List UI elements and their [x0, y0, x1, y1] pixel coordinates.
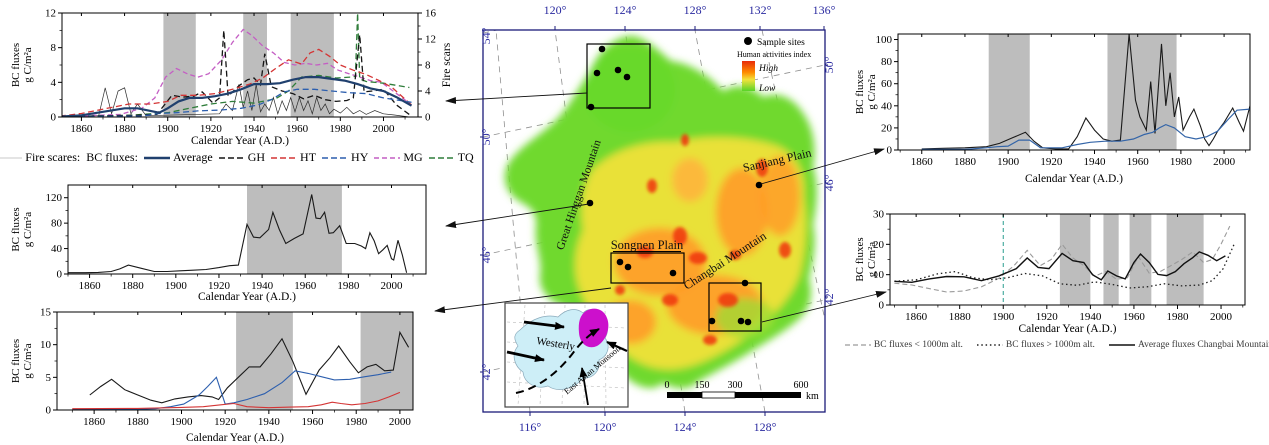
legend-label: TQ	[458, 150, 474, 165]
x-tick-label: 1900	[157, 123, 180, 135]
legend-line-swatch	[322, 153, 348, 163]
x-tick-label: 1940	[243, 123, 266, 135]
lon-bottom-116: 116°	[519, 420, 542, 434]
x-axis-label: Calendar Year (A.D.)	[186, 432, 284, 444]
y-tick-label: 0	[51, 112, 57, 124]
series-Fire scars	[60, 85, 410, 118]
x-tick-label: 1960	[302, 416, 325, 428]
scale-0: 0	[665, 380, 670, 391]
lon-bottom-124: 124°	[674, 420, 697, 434]
legend-line-swatch	[977, 340, 1003, 350]
legend-item-average-fluxes-changbai-mountain: Average fluxes Changbai Mountain	[1109, 340, 1269, 350]
lat-right-42: 42°	[822, 288, 836, 305]
lon-top-128: 128°	[684, 3, 707, 17]
x-tick-label: 1960	[286, 123, 309, 135]
series-group	[922, 34, 1250, 149]
x-tick-label: 2000	[1210, 311, 1233, 323]
y-tick-label: 100	[876, 34, 893, 46]
y-tick-label: 5	[46, 372, 52, 384]
legend-item-mg: MG	[374, 150, 422, 165]
chart-panel-songnen-sites: 18601880190019201940196019802000051015Ca…	[8, 305, 458, 445]
legend-item-ht: HT	[271, 150, 316, 165]
y-tick-label: 15	[40, 307, 52, 319]
x-axis-label: Calendar Year (A.D.)	[191, 135, 289, 147]
songnen-label: Songnen Plain	[611, 238, 684, 252]
x-tick-label: 1900	[170, 416, 193, 428]
legend-item-bc-fluxes-1000m-alt: BC fluxes < 1000m alt.	[845, 340, 963, 350]
x-tick-label: 1880	[114, 123, 137, 135]
x-tick-label: 1980	[1166, 311, 1189, 323]
x-tick-label: 1860	[905, 311, 928, 323]
chartB-svg: 1860188019001920194019601980200004080120…	[8, 178, 458, 304]
legend-label: HY	[351, 150, 368, 165]
y-tick-label: 40	[51, 243, 63, 255]
legend-line-swatch	[845, 340, 871, 350]
y-tick-label: 30	[873, 209, 885, 221]
x-tick-label: 2000	[389, 416, 412, 428]
x-tick-label: 1920	[1036, 311, 1059, 323]
right-tick-label: 4	[425, 86, 431, 98]
scale-300: 300	[728, 380, 743, 391]
figure-canvas: 1860188019001920194019601980200004812048…	[0, 0, 1269, 445]
scale-150: 150	[695, 380, 710, 391]
y-tick-label: 0	[57, 269, 63, 281]
hai-title: Human activities index	[737, 50, 811, 59]
x-tick-label: 1880	[954, 156, 977, 168]
x-tick-label: 1880	[127, 416, 150, 428]
x-tick-label: 1920	[1040, 156, 1063, 168]
legend-line-swatch	[429, 153, 455, 163]
y-tick-label: 20	[881, 122, 893, 134]
right-tick-label: 16	[425, 8, 437, 20]
series-MG	[60, 30, 412, 117]
x-tick-label: 1980	[329, 123, 352, 135]
series-sanjiang-black	[922, 34, 1250, 149]
y-axis-label: BC fluxes	[10, 207, 22, 251]
x-tick-label: 1900	[165, 280, 188, 292]
disturbance-band	[1167, 214, 1204, 305]
disturbance-band	[291, 13, 334, 117]
x-tick-label: 1860	[70, 123, 93, 135]
series-HY	[60, 89, 412, 116]
y-tick-label: 4	[51, 77, 57, 89]
inset-map: Westerly East Asian Monsoon	[505, 303, 628, 407]
legend-item-average: Average	[144, 150, 213, 165]
y-tick-label: 0	[46, 405, 52, 417]
legend-line-swatch	[271, 153, 297, 163]
legend-label: BC fluxes:	[86, 150, 138, 165]
lon-top-120: 120°	[544, 3, 567, 17]
legend-item-tq: TQ	[429, 150, 474, 165]
legend-label: Average fluxes Changbai Mountain	[1138, 340, 1269, 350]
lon-bottom-120: 120°	[594, 420, 617, 434]
x-tick-label: 1880	[122, 280, 145, 292]
chart-panel-fire-scars-bc-fluxes: 1860188019001920194019601980200004812048…	[8, 4, 460, 148]
x-tick-label: 1860	[83, 416, 106, 428]
legend-label: HT	[300, 150, 316, 165]
hai-color-ramp	[742, 61, 755, 91]
map-panel: Great Hinggan Mountain Sanjiang Plain So…	[480, 0, 842, 445]
y-tick-label: 12	[45, 8, 56, 20]
x-axis-label: Calendar Year (A.D.)	[1018, 323, 1116, 335]
disturbance-band	[361, 312, 413, 410]
disturbance-band	[1107, 34, 1176, 150]
lon-bottom-128: 128°	[754, 420, 777, 434]
x-tick-label: 1980	[337, 280, 360, 292]
scale-unit: km	[806, 391, 819, 402]
y-axis-label: BC fluxes	[854, 70, 866, 114]
y-axis-label: g C/m²a	[22, 343, 34, 378]
x-tick-label: 1860	[79, 280, 102, 292]
y-tick-label: 0	[887, 145, 893, 157]
x-tick-label: 1940	[1079, 311, 1102, 323]
legend-line-swatch	[1109, 340, 1135, 350]
x-tick-label: 1980	[345, 416, 368, 428]
legend-label: MG	[403, 150, 422, 165]
map-legend: Sample sites Human activities index High…	[737, 37, 811, 94]
legend-line-swatch	[374, 153, 400, 163]
lat-left-54: 54°	[479, 27, 493, 44]
lat-right-50: 50°	[822, 56, 836, 73]
lat-left-42: 42°	[479, 363, 493, 380]
lat-left-46: 46°	[479, 246, 493, 263]
chartE-svg: 186018801900192019401960198020000102030C…	[852, 196, 1264, 336]
sample-sites-dot-icon	[744, 37, 752, 45]
x-tick-label: 1980	[1170, 156, 1193, 168]
legend-label: Fire scares:	[25, 150, 80, 165]
legend-line-swatch	[144, 153, 170, 163]
right-tick-label: 8	[425, 60, 431, 72]
legend-label: Average	[173, 150, 213, 165]
x-tick-label: 1960	[294, 280, 317, 292]
x-tick-label: 2000	[1213, 156, 1236, 168]
x-axis-label: Calendar Year (A.D.)	[1025, 173, 1123, 185]
y-axis-label: g C/m²a	[866, 242, 878, 277]
chartA-svg: 1860188019001920194019601980200004812048…	[8, 4, 460, 148]
lon-top-132: 132°	[749, 3, 772, 17]
legend-item-fire-scares: Fire scares:	[0, 150, 80, 165]
scale-600: 600	[794, 380, 809, 391]
y-tick-label: 60	[881, 78, 893, 90]
y-tick-label: 10	[40, 339, 52, 351]
x-tick-label: 1900	[992, 311, 1015, 323]
chart-panel-sanjiang-plain: 1860188019001920194019601980200002040608…	[852, 8, 1264, 186]
lat-right-46: 46°	[822, 174, 836, 191]
lon-top-124: 124°	[614, 3, 637, 17]
legend-label: GH	[248, 150, 265, 165]
x-tick-label: 1940	[258, 416, 281, 428]
x-tick-label: 2000	[380, 280, 403, 292]
y-tick-label: 0	[879, 300, 885, 312]
x-axis-label: Calendar Year (A.D.)	[198, 291, 296, 303]
map: Great Hinggan Mountain Sanjiang Plain So…	[480, 0, 842, 445]
y-axis-label: g C/m²a	[22, 47, 34, 82]
legend-line-swatch	[0, 153, 22, 163]
lon-top-136: 136°	[813, 3, 836, 17]
hai-low-label: Low	[758, 84, 776, 94]
x-tick-label: 2000	[372, 123, 395, 135]
x-tick-label: 1860	[911, 156, 934, 168]
series-group	[68, 195, 407, 273]
chartD-svg: 1860188019001920194019601980200002040608…	[852, 8, 1264, 186]
y-axis-label: g C/m²a	[22, 212, 34, 247]
x-tick-label: 1920	[200, 123, 223, 135]
plot-frame	[57, 312, 413, 410]
right-tick-label: 0	[425, 112, 431, 124]
plot-frame	[898, 34, 1250, 150]
series-BC flux	[68, 195, 407, 273]
x-tick-label: 1960	[1123, 311, 1146, 323]
y-axis-label: BC fluxes	[854, 237, 866, 281]
y-tick-label: 80	[881, 56, 893, 68]
lat-left-50: 50°	[479, 128, 493, 145]
y-tick-label: 8	[51, 42, 57, 54]
y-axis-label: BC fluxes	[10, 339, 22, 383]
series-group	[60, 13, 412, 117]
y-tick-label: 80	[51, 218, 63, 230]
chart-panel-changbai-mountain: 186018801900192019401960198020000102030C…	[852, 196, 1264, 336]
legend-fire-scars-bc-fluxes: Fire scares:BC fluxes:AverageGHHTHYMGTQ	[10, 150, 460, 165]
y-tick-label: 40	[881, 100, 893, 112]
chartC-svg: 18601880190019201940196019802000051015Ca…	[8, 305, 458, 445]
y-axis-label: g C/m²a	[866, 74, 878, 109]
x-tick-label: 1960	[1127, 156, 1150, 168]
sample-sites-label: Sample sites	[757, 38, 805, 48]
disturbance-band	[1103, 214, 1118, 305]
y-tick-label: 120	[46, 192, 63, 204]
hai-high-label: High	[758, 64, 778, 74]
right-axis-label: Fire scars	[441, 42, 453, 87]
legend-changbai-fluxes: BC fluxes < 1000m alt.BC fluxes > 1000m …	[852, 340, 1266, 350]
x-tick-label: 1880	[949, 311, 972, 323]
legend-label: BC fluxes > 1000m alt.	[1006, 340, 1095, 350]
legend-item-bc-fluxes: BC fluxes:	[86, 150, 138, 165]
series-sanjiang-blue	[922, 109, 1250, 149]
legend-item-bc-fluxes-1000m-alt: BC fluxes > 1000m alt.	[977, 340, 1095, 350]
x-tick-label: 1900	[997, 156, 1020, 168]
legend-label: BC fluxes < 1000m alt.	[874, 340, 963, 350]
legend-item-gh: GH	[219, 150, 265, 165]
legend-item-hy: HY	[322, 150, 368, 165]
legend-line-swatch	[219, 153, 245, 163]
x-tick-label: 1940	[1084, 156, 1107, 168]
y-axis-label: BC fluxes	[10, 43, 22, 87]
x-tick-label: 1920	[214, 416, 237, 428]
right-tick-label: 12	[425, 34, 436, 46]
chart-panel-great-hinggan-site: 1860188019001920194019601980200004080120…	[8, 178, 458, 304]
series-HT	[60, 49, 412, 116]
